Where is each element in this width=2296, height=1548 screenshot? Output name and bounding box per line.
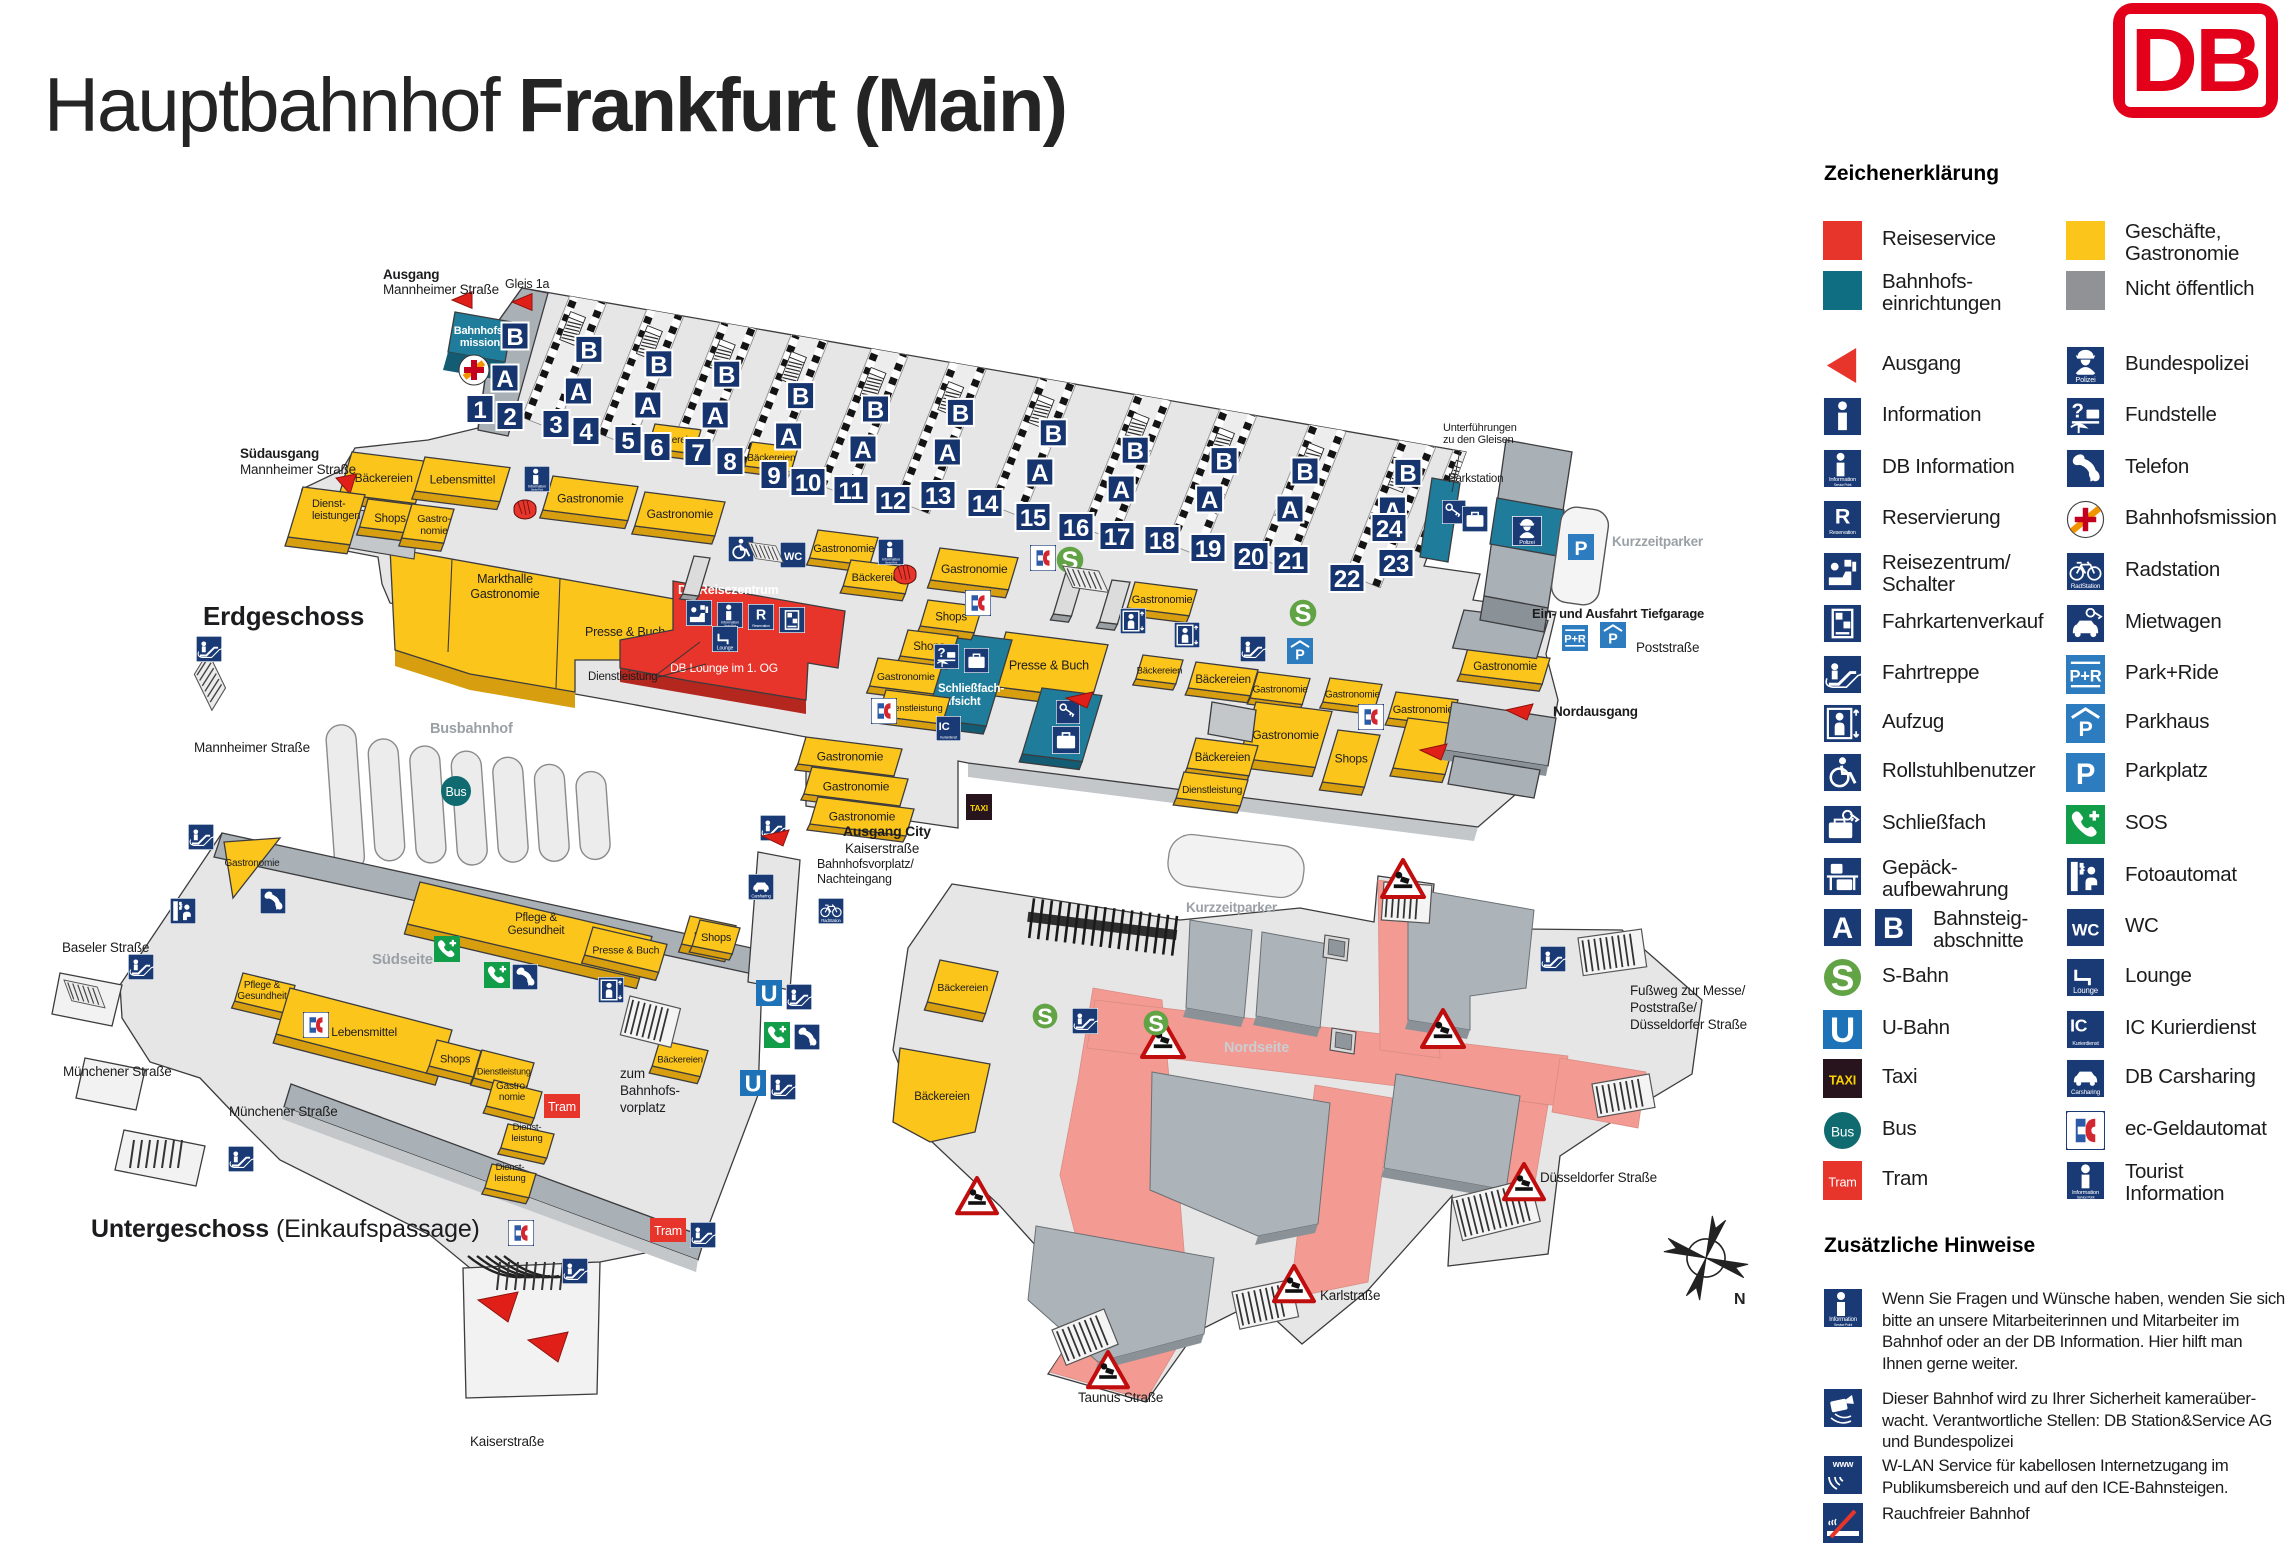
svg-text:Shops: Shops: [935, 611, 967, 623]
svg-text:B: B: [650, 352, 667, 379]
svg-text:B: B: [580, 337, 597, 364]
svg-text:Bäckereien: Bäckereien: [657, 1054, 703, 1065]
svg-text:nomie: nomie: [499, 1092, 526, 1103]
svg-text:Presse & Buch: Presse & Buch: [592, 945, 659, 957]
svg-text:zu den Gleisen: zu den Gleisen: [1443, 434, 1514, 446]
svg-text:A: A: [707, 403, 724, 430]
svg-text:Münchener Straße: Münchener Straße: [63, 1064, 172, 1079]
svg-text:Presse & Buch: Presse & Buch: [1009, 658, 1089, 672]
svg-text:Gleis 1a: Gleis 1a: [505, 277, 550, 291]
svg-text:Busbahnhof: Busbahnhof: [430, 721, 513, 737]
svg-text:leistungen: leistungen: [312, 510, 360, 522]
svg-text:Dienstleistung: Dienstleistung: [477, 1067, 531, 1077]
svg-text:Shops: Shops: [1335, 752, 1368, 766]
svg-text:6: 6: [650, 435, 663, 462]
svg-text:leistung: leistung: [494, 1173, 525, 1184]
svg-text:A: A: [939, 440, 956, 467]
svg-text:2: 2: [503, 404, 516, 431]
svg-text:Bahnhofsvorplatz/: Bahnhofsvorplatz/: [817, 857, 914, 871]
svg-text:23: 23: [1383, 551, 1409, 578]
svg-text:Lebensmittel: Lebensmittel: [430, 472, 496, 486]
svg-text:Bäckereien: Bäckereien: [355, 471, 413, 485]
svg-text:zum: zum: [620, 1066, 645, 1081]
svg-text:N: N: [1734, 1291, 1745, 1308]
svg-text:Gastro-: Gastro-: [417, 513, 451, 525]
svg-text:18: 18: [1149, 528, 1175, 555]
svg-text:Nachteingang: Nachteingang: [817, 872, 892, 886]
svg-text:Gastronomie: Gastronomie: [813, 543, 874, 555]
svg-text:21: 21: [1278, 548, 1304, 575]
svg-text:Düsseldorfer Straße: Düsseldorfer Straße: [1540, 1170, 1657, 1185]
svg-text:Ausgang City: Ausgang City: [843, 823, 931, 839]
svg-text:Nordseite: Nordseite: [1224, 1040, 1289, 1056]
svg-text:Münchener Straße: Münchener Straße: [229, 1104, 338, 1119]
svg-text:Pflege &: Pflege &: [515, 912, 557, 924]
svg-text:Tram: Tram: [548, 1100, 576, 1114]
svg-text:Dienstleistung: Dienstleistung: [588, 671, 657, 683]
svg-text:Bäckereien: Bäckereien: [937, 982, 988, 994]
svg-text:B: B: [952, 400, 969, 427]
svg-text:Kurzzeitparker: Kurzzeitparker: [1612, 534, 1704, 549]
svg-text:Gastronomie: Gastronomie: [224, 858, 280, 869]
svg-text:Gesundheit: Gesundheit: [237, 991, 287, 1002]
svg-text:Bäckereien: Bäckereien: [914, 1091, 970, 1103]
svg-text:Bahnhofs-: Bahnhofs-: [620, 1083, 680, 1098]
svg-text:Gastronomie: Gastronomie: [1325, 689, 1381, 700]
svg-text:Ein- und Ausfahrt Tiefgarage: Ein- und Ausfahrt Tiefgarage: [1532, 606, 1704, 621]
svg-text:Shops: Shops: [701, 932, 732, 944]
svg-text:A: A: [496, 366, 513, 393]
svg-text:Mannheimer Straße: Mannheimer Straße: [383, 282, 499, 297]
svg-text:mission: mission: [460, 337, 501, 349]
svg-text:11: 11: [839, 478, 864, 505]
svg-text:Gastronomie: Gastronomie: [823, 780, 890, 794]
svg-text:B: B: [867, 397, 884, 424]
svg-text:B: B: [1045, 421, 1062, 448]
svg-text:Kaiserstraße: Kaiserstraße: [470, 1434, 544, 1449]
svg-text:1: 1: [473, 397, 486, 424]
svg-text:8: 8: [723, 449, 736, 476]
svg-text:Mannheimer Straße: Mannheimer Straße: [240, 462, 356, 477]
svg-text:Bäckereien: Bäckereien: [1195, 752, 1251, 764]
svg-text:B: B: [506, 324, 523, 351]
svg-text:Gastronomie: Gastronomie: [1253, 684, 1309, 695]
svg-text:Untergeschoss: Untergeschoss: [91, 1215, 269, 1243]
svg-text:DB Lounge im 1. OG: DB Lounge im 1. OG: [670, 661, 778, 675]
svg-text:13: 13: [925, 483, 951, 510]
svg-text:B: B: [1399, 460, 1416, 487]
svg-text:(Einkaufspassage): (Einkaufspassage): [276, 1215, 480, 1243]
svg-text:Gastronomie: Gastronomie: [1473, 661, 1537, 673]
svg-text:16: 16: [1063, 515, 1089, 542]
svg-text:5: 5: [621, 428, 634, 455]
svg-text:Bus: Bus: [446, 785, 467, 799]
svg-text:Kaiserstraße: Kaiserstraße: [845, 841, 919, 856]
svg-text:Tram: Tram: [654, 1224, 682, 1238]
svg-text:Dienst-: Dienst-: [513, 1122, 542, 1133]
svg-text:19: 19: [1195, 536, 1221, 563]
svg-text:Schließfach-: Schließfach-: [938, 683, 1004, 695]
svg-text:9: 9: [767, 463, 780, 490]
svg-text:17: 17: [1104, 524, 1130, 551]
svg-text:Gastronomie: Gastronomie: [1252, 728, 1319, 742]
svg-text:leistung: leistung: [511, 1133, 542, 1144]
svg-text:Mannheimer Straße: Mannheimer Straße: [194, 740, 310, 755]
svg-text:B: B: [1216, 449, 1233, 476]
svg-text:A: A: [639, 393, 656, 420]
svg-text:Gastronomie: Gastronomie: [557, 491, 624, 505]
svg-text:vorplatz: vorplatz: [620, 1100, 666, 1115]
svg-text:Nordausgang: Nordausgang: [1553, 704, 1638, 719]
svg-text:22: 22: [1334, 566, 1360, 593]
svg-text:B: B: [1296, 459, 1313, 486]
svg-text:10: 10: [795, 470, 821, 497]
svg-text:Gastronomie: Gastronomie: [470, 587, 540, 601]
svg-text:Ausgang: Ausgang: [383, 267, 439, 282]
svg-text:Karlstraße: Karlstraße: [1320, 1288, 1380, 1303]
svg-text:Poststraße: Poststraße: [1636, 640, 1699, 655]
svg-text:Fußweg zur Messe/: Fußweg zur Messe/: [1630, 983, 1746, 998]
svg-text:Gastronomie: Gastronomie: [1132, 594, 1193, 606]
svg-text:Pflege &: Pflege &: [244, 980, 281, 991]
svg-text:A: A: [1031, 460, 1048, 487]
svg-text:7: 7: [691, 440, 704, 467]
svg-text:A: A: [780, 424, 797, 451]
svg-text:Gastronomie: Gastronomie: [817, 750, 884, 764]
svg-text:B: B: [1127, 438, 1144, 465]
svg-text:A: A: [854, 437, 871, 464]
svg-text:Dienst-: Dienst-: [496, 1162, 525, 1173]
svg-text:Dienst-: Dienst-: [312, 498, 346, 510]
svg-text:Dienstleistung: Dienstleistung: [1182, 785, 1242, 796]
svg-text:12: 12: [880, 488, 906, 515]
svg-text:15: 15: [1020, 505, 1046, 532]
svg-text:14: 14: [972, 491, 999, 518]
svg-text:24: 24: [1376, 516, 1403, 543]
svg-text:Gastronomie: Gastronomie: [829, 810, 896, 824]
svg-text:Kurzzeitparker: Kurzzeitparker: [1186, 900, 1278, 915]
svg-text:Shops: Shops: [440, 1054, 471, 1066]
svg-text:Lebensmittel: Lebensmittel: [331, 1025, 397, 1039]
svg-text:20: 20: [1238, 544, 1264, 571]
svg-text:B: B: [718, 362, 735, 389]
svg-text:nomie: nomie: [420, 525, 448, 537]
svg-text:Gastronomie: Gastronomie: [941, 562, 1008, 576]
svg-text:4: 4: [579, 419, 593, 446]
svg-text:Poststraße/: Poststraße/: [1630, 1000, 1697, 1015]
svg-text:Unterführungen: Unterführungen: [1443, 422, 1517, 434]
svg-text:Markthalle: Markthalle: [477, 572, 533, 586]
svg-text:Südseite: Südseite: [372, 951, 433, 968]
svg-text:Gastronomie: Gastronomie: [1393, 704, 1454, 716]
svg-text:A: A: [1201, 487, 1218, 514]
svg-text:Südausgang: Südausgang: [240, 446, 319, 461]
svg-text:Bäckereien: Bäckereien: [1195, 674, 1251, 686]
svg-text:A: A: [570, 379, 587, 406]
svg-text:B: B: [792, 384, 809, 411]
svg-text:Düsseldorfer Straße: Düsseldorfer Straße: [1630, 1017, 1747, 1032]
svg-text:Gesundheit: Gesundheit: [508, 925, 566, 937]
svg-text:A: A: [1281, 497, 1298, 524]
svg-text:Bahnhofs-: Bahnhofs-: [454, 325, 507, 337]
svg-text:Shops: Shops: [374, 513, 406, 525]
svg-text:Baseler Straße: Baseler Straße: [62, 940, 149, 955]
svg-text:Erdgeschoss: Erdgeschoss: [203, 601, 364, 631]
svg-text:Bäckereien: Bäckereien: [1137, 666, 1183, 677]
svg-text:3: 3: [549, 412, 562, 439]
svg-text:Gastronomie: Gastronomie: [877, 671, 935, 683]
svg-text:Gastronomie: Gastronomie: [647, 507, 714, 521]
svg-text:Taunus Straße: Taunus Straße: [1078, 1390, 1163, 1405]
svg-text:A: A: [1113, 477, 1130, 504]
svg-text:Parkstation: Parkstation: [1448, 473, 1503, 485]
svg-text:Gastro-: Gastro-: [496, 1081, 528, 1092]
